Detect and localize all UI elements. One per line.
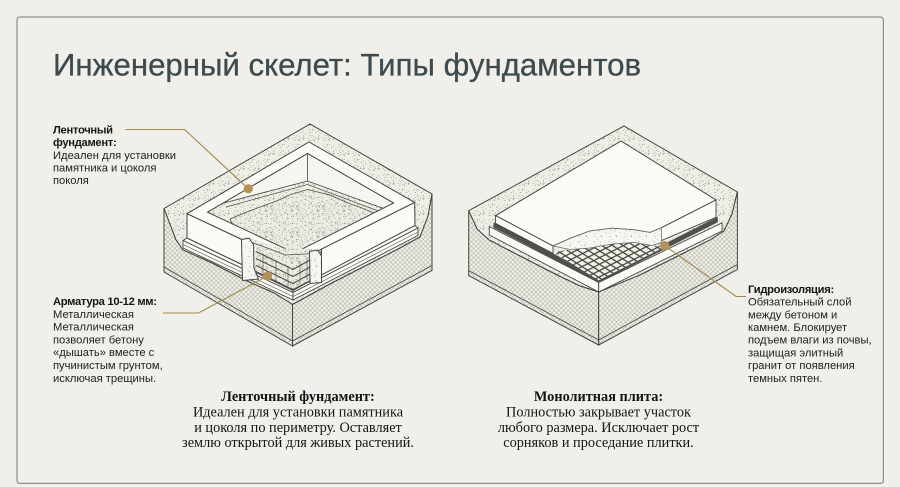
svg-text:гранит от появления: гранит от появления xyxy=(748,360,855,372)
svg-text:Ленточный: Ленточный xyxy=(53,124,113,136)
svg-text:Полностью закрывает участок: Полностью закрывает участок xyxy=(506,404,691,420)
svg-text:любого размера. Исключает рост: любого размера. Исключает рост xyxy=(498,420,700,436)
svg-text:Металлическая: Металлическая xyxy=(53,322,134,334)
svg-text:Гидроизоляция:: Гидроизоляция: xyxy=(748,284,834,296)
svg-text:памятника и цоколя: памятника и цоколя xyxy=(53,163,157,175)
svg-text:Арматура 10-12 мм:: Арматура 10-12 мм: xyxy=(53,296,157,308)
svg-text:позволяет бетону: позволяет бетону xyxy=(53,334,144,346)
svg-text:сорняков и проседание плитки.: сорняков и проседание плитки. xyxy=(503,435,693,451)
svg-text:подъем влаги из почвы,: подъем влаги из почвы, xyxy=(748,335,872,347)
svg-text:камнем. Блокирует: камнем. Блокирует xyxy=(748,322,847,334)
svg-text:темных пятен.: темных пятен. xyxy=(748,373,822,385)
svg-text:пучинистым грунтом,: пучинистым грунтом, xyxy=(53,360,163,372)
svg-text:Ленточный фундамент:: Ленточный фундамент: xyxy=(221,389,374,405)
svg-text:Монолитная плита:: Монолитная плита: xyxy=(534,389,663,405)
svg-text:между бетоном и: между бетоном и xyxy=(748,309,837,321)
svg-text:и цоколя по периметру. Оставля: и цоколя по периметру. Оставляет xyxy=(194,420,402,436)
svg-text:исключая трещины.: исключая трещины. xyxy=(53,373,156,385)
svg-text:фундамент:: фундамент: xyxy=(53,137,116,149)
svg-text:Инженерный скелет: Типы фундам: Инженерный скелет: Типы фундаментов xyxy=(53,48,641,83)
svg-text:Обязательный слой: Обязательный слой xyxy=(748,297,852,309)
svg-text:Идеален для установки: Идеален для установки xyxy=(53,150,176,162)
svg-text:Идеален для установки памятник: Идеален для установки памятника xyxy=(193,404,404,420)
svg-text:защищая элитный: защищая элитный xyxy=(748,347,843,359)
svg-text:землю открытой для живых расте: землю открытой для живых растений. xyxy=(182,435,414,451)
svg-text:Металлическая: Металлическая xyxy=(53,309,134,321)
svg-text:поколя: поколя xyxy=(53,175,89,187)
svg-text:«дышать» вместе с: «дышать» вместе с xyxy=(53,347,155,359)
